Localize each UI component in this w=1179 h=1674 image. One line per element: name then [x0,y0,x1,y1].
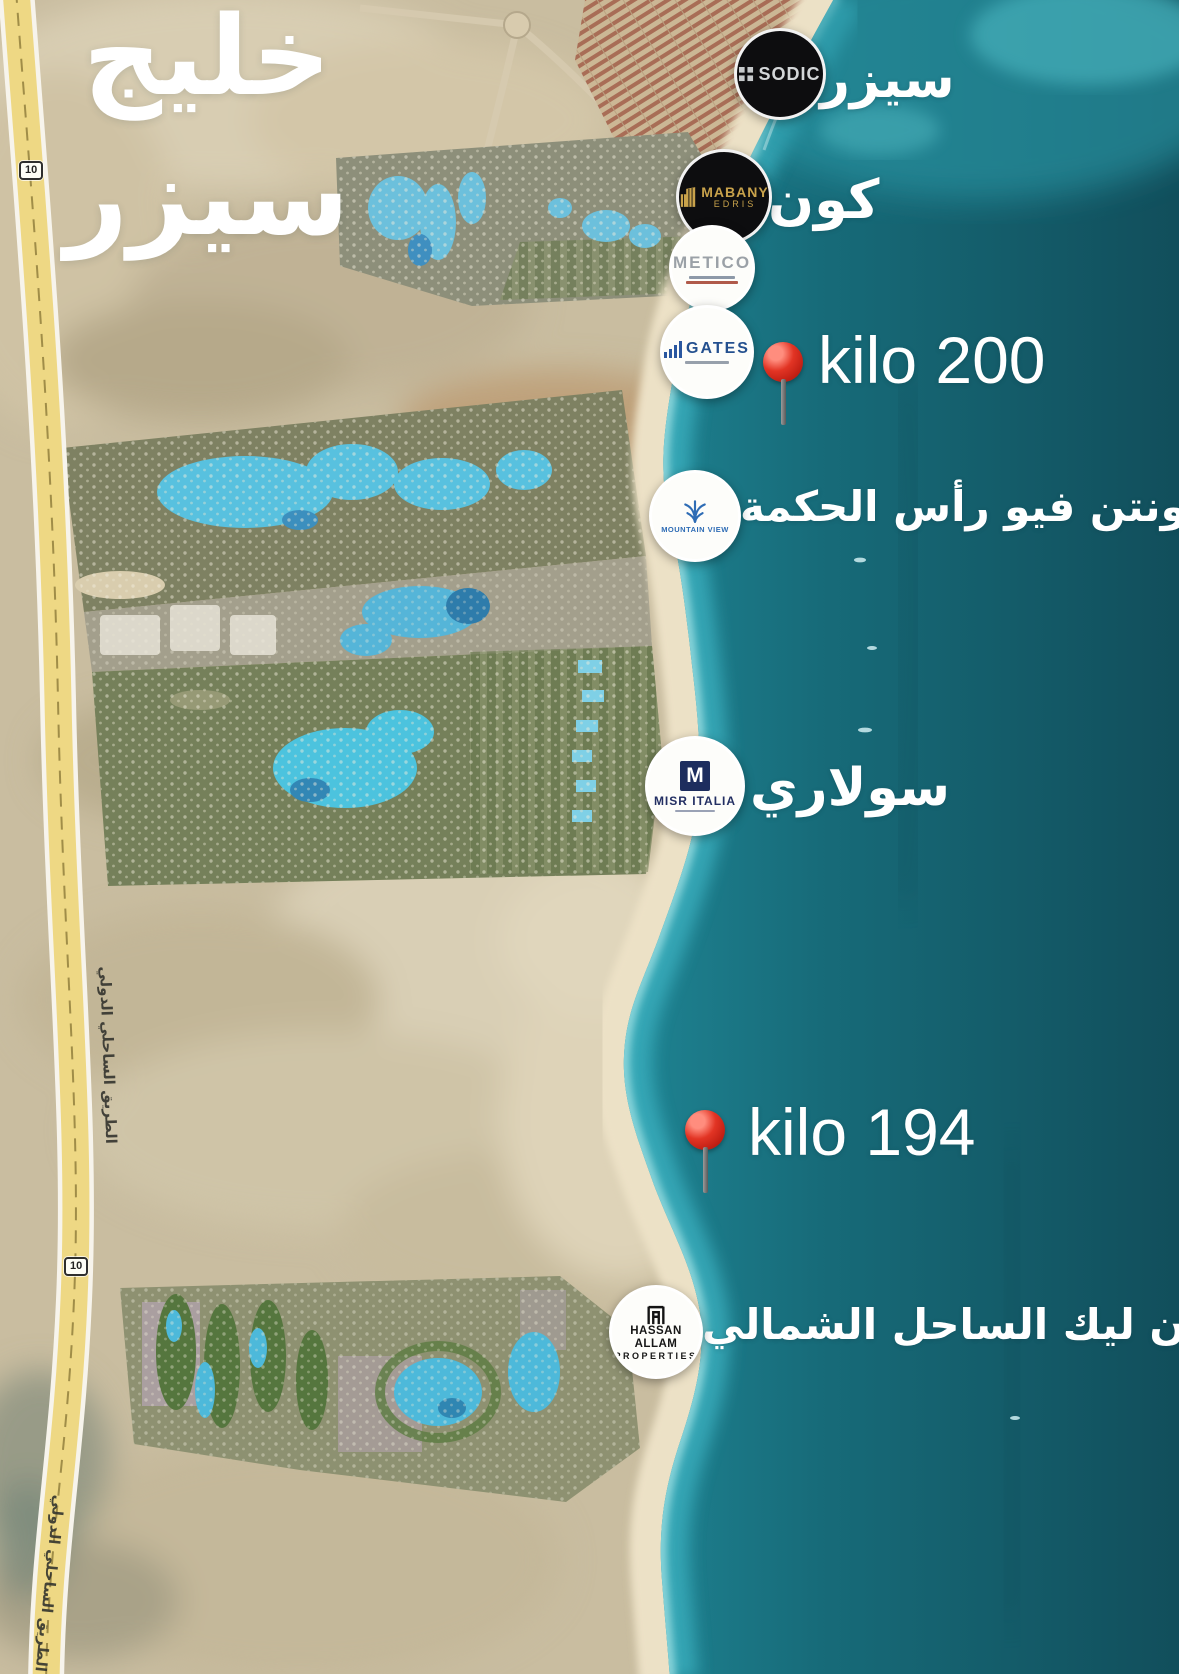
metico-subtext-line [689,276,735,279]
region-title-line2: سيزر [52,126,362,266]
label-solare: سولاري [750,758,950,818]
marker-mountain-view[interactable]: MOUNTAIN VIEW [649,470,741,562]
kilo-194-label: kilo 194 [748,1094,976,1170]
misr-italia-logo-text: MISR ITALIA [654,794,736,808]
map-pin-kilo-194[interactable] [685,1110,725,1193]
marker-gates[interactable]: GATES [660,305,754,399]
kilo-200-label: kilo 200 [818,322,1046,398]
metico-logo-text: METICO [673,253,751,273]
label-caesar: سيزر [820,50,955,110]
region-title-line1: خليج [52,0,362,126]
marker-sodic[interactable]: SODIC [734,28,826,120]
marker-metico[interactable]: METICO [669,225,755,311]
metico-subtext-line [686,281,738,284]
satellite-map: خليج سيزر 10 10 الطريق الساحلي الدولي ال… [0,0,1179,1674]
misr-italia-monogram: M [680,761,710,791]
sodic-grid-icon [739,67,754,82]
hassan-allam-gate-icon [645,1303,667,1325]
pin-stem [781,379,786,425]
pin-ball [763,342,803,382]
mountain-view-palm-icon [681,498,709,524]
label-koun: كون [768,168,879,231]
gates-bars-icon [664,341,682,358]
hassan-allam-logo-line1: HASSAN ALLAM [612,1325,700,1351]
label-swan-lake-north-coast: سوان ليك الساحل الشمالي [702,1300,1179,1349]
region-title: خليج سيزر [52,0,362,266]
map-pin-kilo-200[interactable] [763,342,803,425]
mabany-logo-line2: EDRIS [701,199,768,209]
marker-hassan-allam[interactable]: HASSAN ALLAM PROPERTIES [609,1285,703,1379]
route-10-badge: 10 [64,1257,88,1276]
mountain-view-logo-text: MOUNTAIN VIEW [661,525,729,534]
mabany-building-icon [679,185,697,209]
mabany-logo-line1: MABANY [701,185,768,199]
misr-italia-subtext-line [675,810,715,812]
gates-logo-text: GATES [686,340,750,358]
pin-ball [685,1110,725,1150]
marker-misr-italia[interactable]: M MISR ITALIA [645,736,745,836]
hassan-allam-logo-line2: PROPERTIES [614,1351,697,1362]
gates-subtext-line [685,361,729,364]
label-mountain-view-ras-el-hekma: ماونتن فيو رأس الحكمة [740,482,1179,531]
sodic-logo-text: SODIC [758,64,820,85]
route-10-badge: 10 [19,161,43,180]
pin-stem [703,1147,708,1193]
